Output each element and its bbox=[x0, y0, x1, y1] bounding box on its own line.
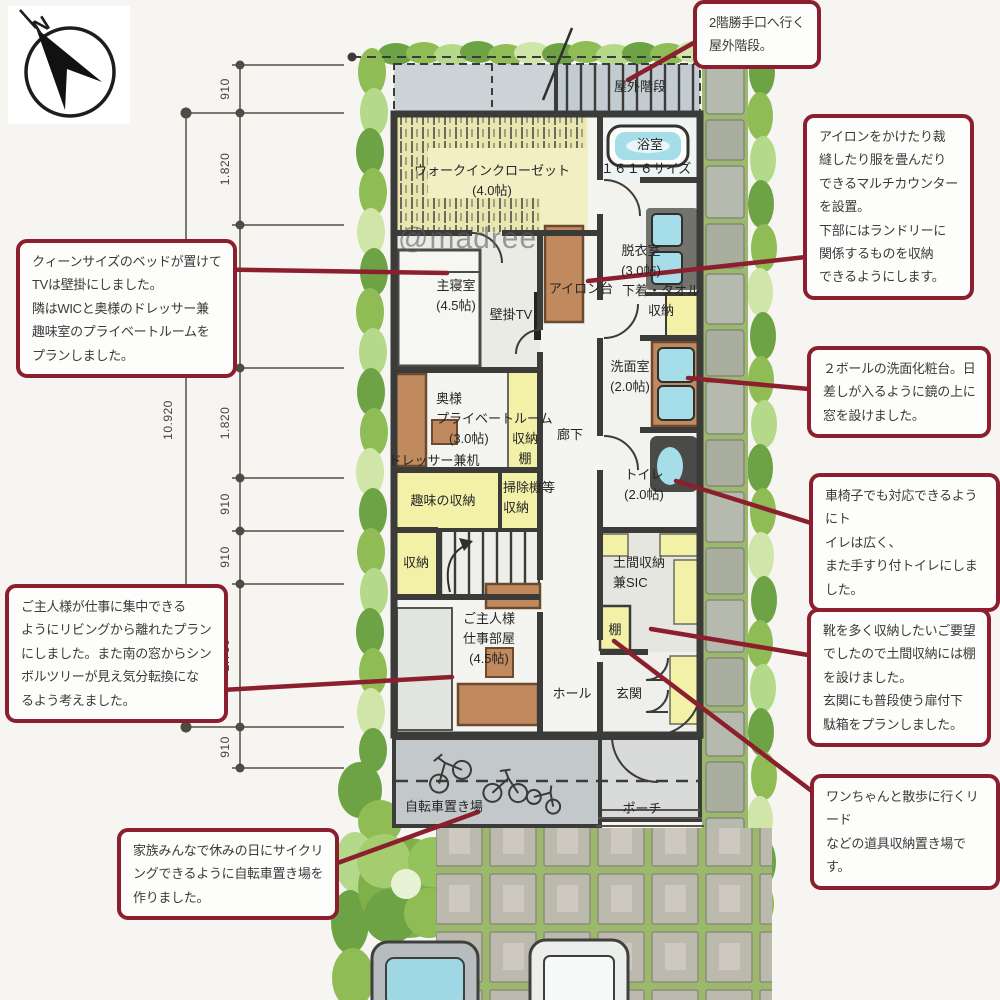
dim-segment: 910 bbox=[218, 736, 232, 758]
room-label-shelf: 棚 bbox=[608, 620, 621, 640]
room-label-bicycle-parking: 自転車置き場 bbox=[405, 797, 483, 817]
note-shoe-storage: 靴を多く収納したいご要望 でしたので土間収納には棚 を設けました。 玄関にも普段… bbox=[807, 608, 991, 747]
note-bicycle: 家族みんなで休みの日にサイクリ ングできるように自転車置き場を 作りました。 bbox=[117, 828, 339, 920]
room-label-porch: ポーチ bbox=[622, 799, 661, 819]
room-label-husband-workroom: ご主人様 仕事部屋 (4.5帖) bbox=[463, 609, 515, 669]
north-arrow-compass bbox=[6, 2, 136, 132]
car bbox=[372, 942, 478, 1000]
dim-segment: 910 bbox=[218, 78, 232, 100]
room-label-bath-size: １６１６サイズ bbox=[601, 159, 692, 179]
room-label-iron-counter: アイロン台 bbox=[549, 279, 613, 299]
watermark: @madree bbox=[398, 222, 537, 256]
room-label-hallway: 廊下 bbox=[557, 425, 583, 445]
room-label-dresser-desk: ドレッサー兼机 bbox=[388, 451, 479, 471]
room-label-hobby-storage: 趣味の収納 bbox=[410, 491, 475, 511]
hedge-right bbox=[747, 48, 777, 926]
stone-path bbox=[702, 60, 748, 870]
dim-overall: 10.920 bbox=[161, 400, 175, 440]
room-label-toilet: トイレ (2.0帖) bbox=[624, 465, 664, 505]
room-label-outdoor-stairs: 屋外階段 bbox=[614, 77, 666, 97]
dim-segment: 1.820 bbox=[218, 153, 232, 186]
note-toilet: 車椅子でも対応できるようにト イレは広く、 また手すり付トイレにしました。 bbox=[809, 473, 1000, 612]
room-label-master-bedroom: 主寝室 (4.5帖) bbox=[436, 276, 476, 316]
dim-segment: 1.820 bbox=[218, 407, 232, 440]
note-workroom: ご主人様が仕事に集中できる ようにリビングから離れたプラン にしました。また南の… bbox=[5, 584, 228, 723]
room-label-storage-shelf: 収納 棚 bbox=[512, 429, 538, 469]
floor-plan-canvas: N @madree 910 1.820 2.730 1.820 910 910 … bbox=[0, 0, 1000, 1000]
room-label-closet: 収納 bbox=[403, 553, 429, 573]
room-label-washroom: 洗面室 (2.0帖) bbox=[610, 357, 650, 397]
room-label-bath: 浴室 bbox=[637, 135, 663, 155]
note-dog-lead: ワンちゃんと散歩に行くリード などの道具収納置き場で す。 bbox=[810, 774, 1000, 890]
note-bedroom: クィーンサイズのベッドが置けて TVは壁掛にしました。 隣はWICと奥様のドレッ… bbox=[16, 239, 237, 378]
room-label-doma-storage: 土間収納 兼SIC bbox=[613, 553, 665, 593]
car bbox=[530, 940, 628, 1000]
dim-segment: 910 bbox=[218, 546, 232, 568]
note-multi-counter: アイロンをかけたり裁 縫したり服を畳んだり できるマルチカウンター を設置。 下… bbox=[803, 114, 974, 300]
note-wash-basin: ２ボールの洗面化粧台。日 差しが入るように鏡の上に 窓を設けました。 bbox=[807, 346, 991, 438]
hedge-left bbox=[356, 48, 388, 772]
room-label-wic: ウォークインクローゼット (4.0帖) bbox=[414, 161, 570, 201]
room-label-underwear-storage: 下着・タオル 収納 bbox=[622, 281, 700, 321]
room-label-entrance: 玄関 bbox=[616, 684, 642, 704]
room-label-hall: ホール bbox=[552, 684, 591, 704]
room-label-wall-tv: 壁掛TV bbox=[490, 305, 533, 325]
room-label-dressing: 脱衣室 (3.0帖) bbox=[621, 241, 661, 281]
room-label-vacuum-storage: 掃除機等 収納 bbox=[503, 478, 555, 518]
dim-segment: 910 bbox=[218, 493, 232, 515]
note-outdoor-stairs: 2階勝手口へ行く 屋外階段。 bbox=[693, 0, 821, 69]
